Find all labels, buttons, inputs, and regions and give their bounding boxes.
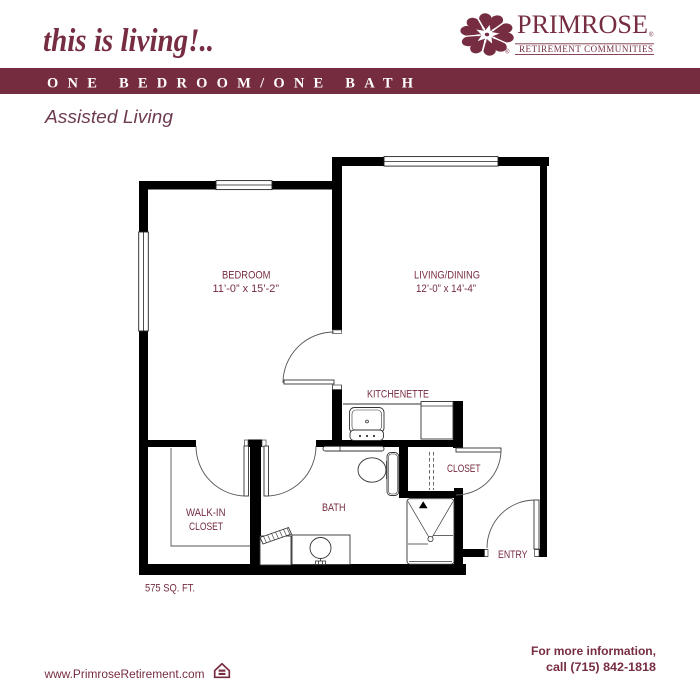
svg-text:www.PrimroseRetirement.com: www.PrimroseRetirement.com	[44, 667, 205, 681]
svg-text:LIVING/DINING: LIVING/DINING	[414, 270, 480, 282]
svg-text:For more information,: For more information,	[531, 644, 656, 658]
svg-text:BATH: BATH	[322, 502, 346, 514]
svg-text:®: ®	[649, 32, 654, 39]
svg-text:this is living!..: this is living!..	[43, 23, 214, 59]
svg-text:11’-0” x 15’-2”: 11’-0” x 15’-2”	[213, 283, 280, 295]
svg-text:BEDROOM: BEDROOM	[222, 270, 271, 282]
svg-text:Assisted Living: Assisted Living	[44, 106, 174, 127]
svg-text:CLOSET: CLOSET	[447, 463, 481, 475]
svg-text:®: ®	[505, 49, 510, 56]
svg-text:12’-0” x 14’-4”: 12’-0” x 14’-4”	[416, 283, 476, 295]
svg-text:CLOSET: CLOSET	[189, 521, 223, 533]
svg-text:ENTRY: ENTRY	[498, 549, 528, 561]
svg-text:PRIMROSE: PRIMROSE	[517, 10, 648, 39]
svg-text:call (715) 842-1818: call (715) 842-1818	[546, 660, 656, 674]
svg-text:KITCHENETTE: KITCHENETTE	[367, 389, 429, 401]
svg-text:WALK-IN: WALK-IN	[186, 507, 226, 519]
svg-text:RETIREMENT COMMUNITIES: RETIREMENT COMMUNITIES	[519, 44, 653, 54]
svg-text:575 SQ. FT.: 575 SQ. FT.	[145, 583, 195, 595]
